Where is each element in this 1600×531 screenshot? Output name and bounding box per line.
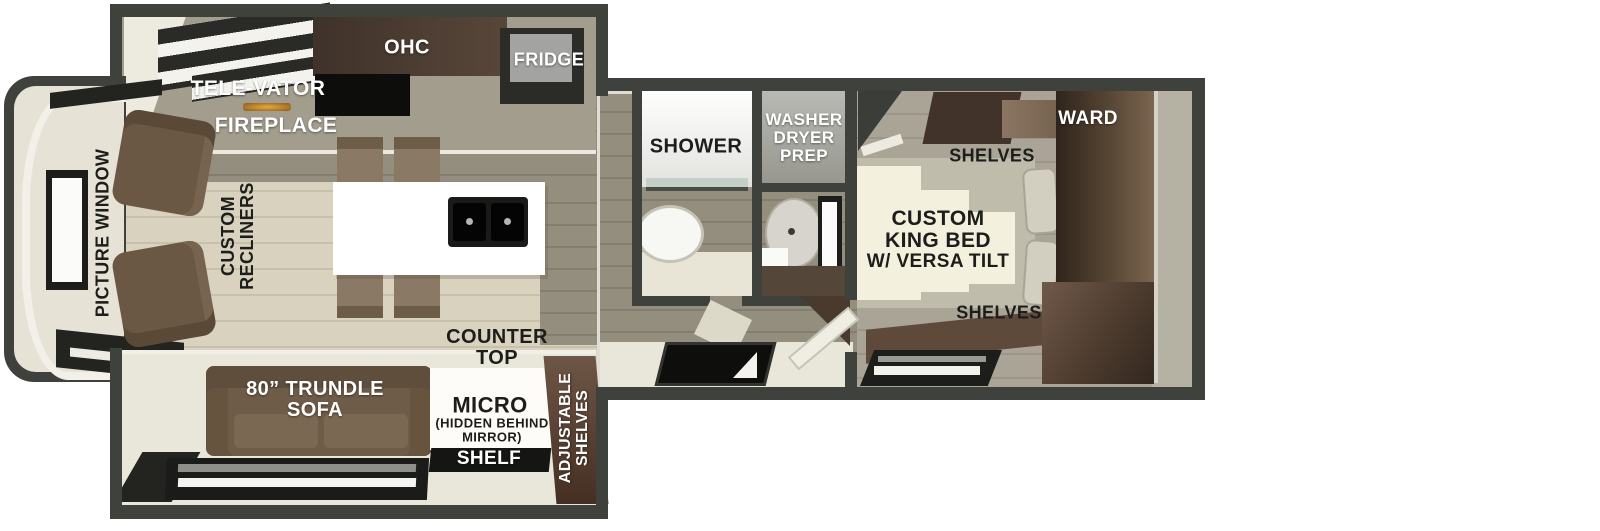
label-custom-recliners: CUSTOM RECLINERS xyxy=(219,182,257,290)
shower-sill xyxy=(646,187,748,191)
label-king-bed-line3: W/ VERSA TILT xyxy=(867,252,1009,272)
label-custom-recliners-line1: CUSTOM xyxy=(219,182,238,290)
dinette-chair xyxy=(394,272,440,318)
label-micro: MICRO xyxy=(452,393,527,416)
wall-bedroom-divider xyxy=(845,91,857,300)
label-adjustable-shelves-line2: SHELVES xyxy=(575,373,592,483)
bedroom-window-slat-white xyxy=(874,366,980,375)
wall-bedroom-divider-stub xyxy=(845,352,857,387)
dinette-chair xyxy=(337,272,383,318)
fireplace-flame xyxy=(243,103,291,111)
label-micro-note-line1: (HIDDEN BEHIND xyxy=(435,416,548,430)
label-counter-top: COUNTER TOP xyxy=(446,327,548,369)
label-fridge: FRIDGE xyxy=(514,51,584,70)
label-washer-dryer-prep: WASHER DRYER PREP xyxy=(765,111,842,165)
entry-step xyxy=(655,342,777,386)
wall-body-bottom xyxy=(597,387,1205,400)
label-micro-note: (HIDDEN BEHIND MIRROR) xyxy=(435,416,548,443)
sofa-window-slat-gray xyxy=(178,464,416,472)
dinette-chair xyxy=(394,137,440,183)
wall-body-right xyxy=(1192,78,1205,400)
dinette-chair xyxy=(337,137,383,183)
faucet-dot xyxy=(504,218,511,225)
label-counter-top-line2: TOP xyxy=(446,348,548,369)
label-king-bed-line2: KING BED xyxy=(867,230,1009,252)
label-shelf: SHELF xyxy=(457,449,521,469)
wall-slide2-right xyxy=(596,387,608,519)
shower-glass xyxy=(646,178,748,187)
wall-body-top xyxy=(597,78,1205,91)
label-shelves-top: SHELVES xyxy=(949,147,1035,166)
toilet-window-glass xyxy=(822,202,837,268)
wall-bath-bottom-left xyxy=(632,296,710,306)
wall-slide2-bottom xyxy=(110,505,608,519)
wall-slide-top xyxy=(110,4,608,17)
label-ohc: OHC xyxy=(384,38,430,59)
bedroom-floor-edge xyxy=(1152,91,1192,387)
bed-pillow xyxy=(1022,167,1061,235)
toilet-flush-button xyxy=(788,228,795,235)
label-ward: WARD xyxy=(1058,109,1118,129)
wall-bath-left xyxy=(632,91,642,303)
vanity-sink xyxy=(636,205,704,263)
wall-bath-mid xyxy=(752,91,762,303)
label-shelves-bottom: SHELVES xyxy=(956,304,1042,323)
label-adjustable-shelves-line1: ADJUSTABLE xyxy=(558,373,575,483)
label-trundle-sofa-line1: 80” TRUNDLE xyxy=(246,379,384,400)
rv-floorplan: OHC FRIDGE TELE-VATOR FIREPLACE PICTURE … xyxy=(0,0,1600,531)
label-fireplace: FIREPLACE xyxy=(215,115,338,137)
label-king-bed: CUSTOM KING BED W/ VERSA TILT xyxy=(867,208,1009,272)
wall-slide2-left xyxy=(110,348,122,519)
recliner-bottom xyxy=(110,239,217,350)
bedroom-rear-cabinet xyxy=(1042,282,1154,384)
toilet-room-cabinet xyxy=(755,266,845,296)
label-counter-top-line1: COUNTER xyxy=(446,327,548,348)
label-micro-note-line2: MIRROR) xyxy=(435,430,548,444)
label-picture-window: PICTURE WINDOW xyxy=(94,149,113,318)
label-trundle-sofa: 80” TRUNDLE SOFA xyxy=(246,379,384,421)
wall-washer-toilet xyxy=(752,183,845,192)
picture-window-glass xyxy=(52,178,82,282)
label-washer-line3: PREP xyxy=(765,147,842,165)
label-shower: SHOWER xyxy=(650,137,742,158)
label-custom-recliners-line2: RECLINERS xyxy=(238,182,257,290)
faucet-dot xyxy=(466,218,473,225)
label-washer-line2: DRYER xyxy=(765,129,842,147)
label-trundle-sofa-line2: SOFA xyxy=(246,400,384,421)
label-washer-line1: WASHER xyxy=(765,111,842,129)
sofa-window-slat-white xyxy=(178,478,416,487)
bedroom-window-slat-gray xyxy=(878,356,986,362)
label-televator: TELE-VATOR xyxy=(191,78,326,100)
tv-lift xyxy=(315,74,410,116)
label-king-bed-line1: CUSTOM xyxy=(867,208,1009,230)
recliner-top xyxy=(110,108,217,219)
label-adjustable-shelves: ADJUSTABLE SHELVES xyxy=(558,373,592,483)
